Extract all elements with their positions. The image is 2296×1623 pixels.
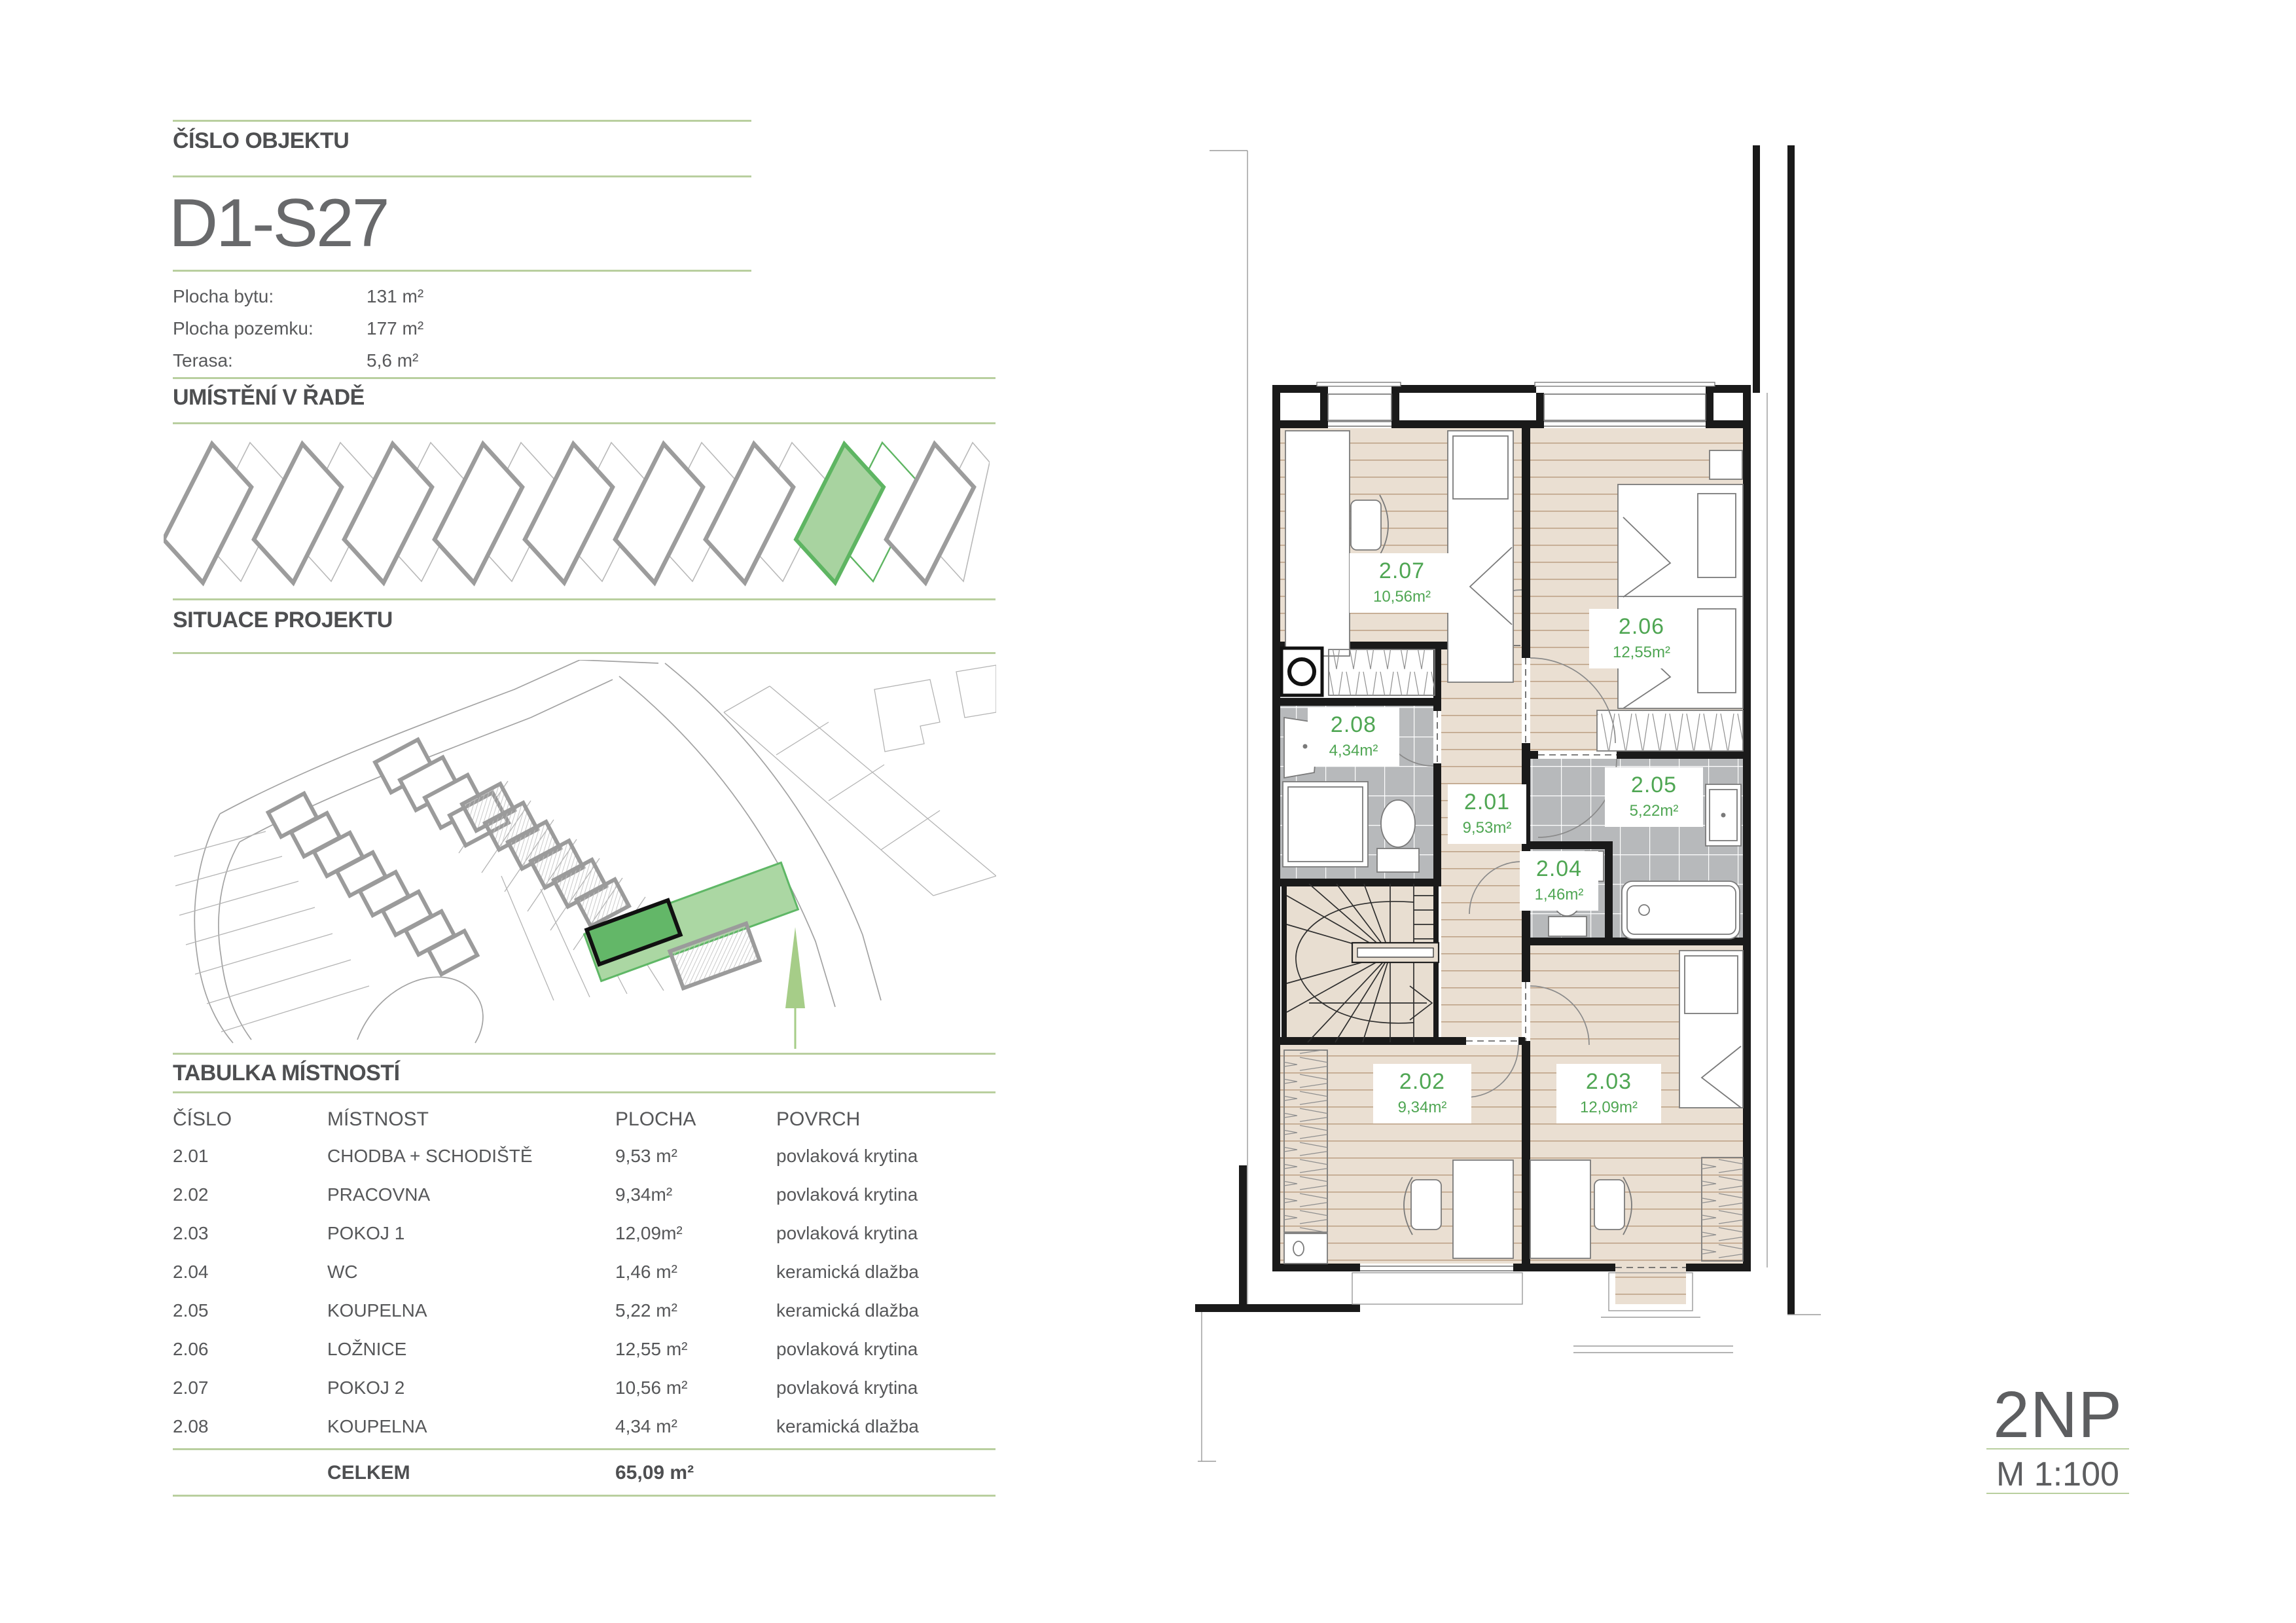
table-row: 2.06LOŽNICE12,55 m²povlaková krytina — [173, 1330, 996, 1368]
bed-2-07 — [1448, 431, 1513, 682]
room-name: POKOJ 2 — [327, 1377, 615, 1398]
room-label-2-06: 2.0612,55m² — [1589, 609, 1694, 668]
divider — [173, 1053, 996, 1055]
bathtub-2-05 — [1622, 881, 1740, 939]
wardrobe-2-06 — [1597, 710, 1743, 751]
sink-2-05 — [1706, 784, 1741, 846]
room-label-2-03: 2.0312,09m² — [1556, 1064, 1661, 1123]
room-table-total: CELKEM 65,09 m² — [173, 1452, 996, 1494]
detail-value: 5,6 m² — [367, 350, 418, 371]
table-row: 2.01CHODBA + SCHODIŠTĚ9,53 m²povlaková k… — [173, 1137, 996, 1175]
room-number: 2.05 — [173, 1300, 327, 1321]
room-name: LOŽNICE — [327, 1339, 615, 1360]
row-position-diagram — [164, 437, 990, 589]
room-table: ČÍSLO MÍSTNOST PLOCHA POVRCH 2.01CHODBA … — [173, 1103, 996, 1446]
bed-2-03 — [1679, 951, 1743, 1108]
detail-row: Plocha pozemku:177 m² — [173, 312, 751, 344]
room-label-2-02: 2.029,34m² — [1373, 1064, 1471, 1123]
room-name: PRACOVNA — [327, 1184, 615, 1205]
room-surface: povlaková krytina — [776, 1184, 996, 1205]
radiator-2-03 — [1702, 1158, 1743, 1261]
room-name: CHODBA + SCHODIŠTĚ — [327, 1146, 615, 1167]
site-house-row-middle — [462, 784, 629, 926]
nightstand — [1710, 450, 1742, 479]
shower-2-08 — [1283, 782, 1368, 867]
divider — [173, 652, 996, 654]
desk-2-03 — [1530, 1160, 1590, 1258]
divider — [1986, 1448, 2129, 1450]
room-name: KOUPELNA — [327, 1416, 615, 1437]
window-2-02 — [1352, 1266, 1522, 1304]
total-area: 65,09 m² — [615, 1462, 776, 1484]
room-surface: keramická dlažba — [776, 1416, 996, 1437]
room-name: KOUPELNA — [327, 1300, 615, 1321]
room-area: 10,56 m² — [615, 1377, 776, 1398]
room-area: 4,34 m² — [615, 1416, 776, 1437]
wardrobe-hall — [1329, 649, 1435, 695]
total-label: CELKEM — [327, 1462, 615, 1484]
detail-value: 131 m² — [367, 286, 423, 307]
room-name: POKOJ 1 — [327, 1223, 615, 1244]
col-area: PLOCHA — [615, 1108, 776, 1131]
north-arrow-icon — [785, 927, 805, 1049]
divider — [173, 120, 751, 122]
room-label-2-07: 2.0710,56m² — [1350, 553, 1454, 613]
col-surface: POVRCH — [776, 1108, 996, 1131]
row-position-heading: UMÍSTĚNÍ V ŘADĚ — [173, 385, 365, 410]
detail-row: Plocha bytu:131 m² — [173, 280, 751, 312]
room-surface: povlaková krytina — [776, 1223, 996, 1244]
detail-label: Plocha bytu: — [173, 286, 367, 307]
detail-value: 177 m² — [367, 318, 423, 339]
table-row: 2.03POKOJ 112,09m²povlaková krytina — [173, 1214, 996, 1252]
divider — [173, 422, 996, 424]
room-number: 2.01 — [173, 1146, 327, 1167]
room-number: 2.06 — [173, 1339, 327, 1360]
table-row: 2.05KOUPELNA5,22 m²keramická dlažba — [173, 1291, 996, 1330]
chair-2-07 — [1351, 500, 1381, 550]
scale-label: M 1:100 — [1986, 1455, 2129, 1494]
site-plan-heading: SITUACE PROJEKTU — [173, 608, 393, 633]
room-number: 2.07 — [173, 1377, 327, 1398]
room-area: 1,46 m² — [615, 1262, 776, 1283]
site-parcels — [174, 686, 996, 1032]
room-area: 9,53 m² — [615, 1146, 776, 1167]
room-area: 9,34m² — [615, 1184, 776, 1205]
room-number: 2.02 — [173, 1184, 327, 1205]
site-plan — [161, 660, 996, 1049]
site-existing-buildings — [874, 665, 996, 752]
room-area: 12,55 m² — [615, 1339, 776, 1360]
house-unit-row — [164, 443, 990, 583]
room-label-2-01: 2.019,53m² — [1448, 784, 1526, 844]
table-row: 2.02PRACOVNA9,34m²povlaková krytina — [173, 1175, 996, 1214]
room-number: 2.04 — [173, 1262, 327, 1283]
floor-label: 2NP — [1986, 1377, 2129, 1453]
chair-2-03 — [1594, 1180, 1624, 1230]
table-row: 2.04WC1,46 m²keramická dlažba — [173, 1252, 996, 1291]
detail-row: Terasa:5,6 m² — [173, 344, 751, 376]
window-2-07 — [1317, 382, 1401, 426]
detail-label: Plocha pozemku: — [173, 318, 367, 339]
room-surface: povlaková krytina — [776, 1377, 996, 1398]
room-label-2-08: 2.084,34m² — [1308, 707, 1399, 767]
room-surface: povlaková krytina — [776, 1339, 996, 1360]
divider — [173, 1091, 996, 1093]
divider — [1986, 1493, 2129, 1494]
toilet-2-08 — [1377, 800, 1419, 872]
divider — [173, 175, 751, 177]
col-name: MÍSTNOST — [327, 1108, 615, 1131]
room-label-2-04: 2.041,46m² — [1520, 851, 1598, 911]
room-table-header: ČÍSLO MÍSTNOST PLOCHA POVRCH — [173, 1103, 996, 1137]
room-area: 5,22 m² — [615, 1300, 776, 1321]
room-table-heading: TABULKA MÍSTNOSTÍ — [173, 1061, 400, 1086]
chair-2-02 — [1411, 1180, 1441, 1230]
object-id: D1-S27 — [169, 185, 388, 263]
object-details: Plocha bytu:131 m² Plocha pozemku:177 m²… — [173, 280, 751, 376]
washing-machine-icon — [1282, 648, 1322, 695]
room-number: 2.08 — [173, 1416, 327, 1437]
room-surface: keramická dlažba — [776, 1300, 996, 1321]
object-number-heading: ČÍSLO OBJEKTU — [173, 128, 349, 154]
divider — [173, 1495, 996, 1497]
col-number: ČÍSLO — [173, 1108, 327, 1131]
wardrobe-2-02 — [1284, 1050, 1327, 1264]
room-area: 12,09m² — [615, 1223, 776, 1244]
room-number: 2.03 — [173, 1223, 327, 1244]
detail-label: Terasa: — [173, 350, 367, 371]
room-surface: povlaková krytina — [776, 1146, 996, 1167]
floor-plan-sheet: { "header": { "section_label": "ČÍSLO OB… — [0, 0, 2296, 1623]
divider — [173, 270, 751, 272]
desk-2-02 — [1453, 1160, 1513, 1258]
divider — [173, 1448, 996, 1450]
divider — [173, 598, 996, 600]
window-2-06 — [1535, 382, 1715, 426]
table-row: 2.07POKOJ 210,56 m²povlaková krytina — [173, 1368, 996, 1407]
double-bed-2-06 — [1618, 484, 1743, 708]
desk-2-07 — [1285, 431, 1350, 656]
room-name: WC — [327, 1262, 615, 1283]
divider — [173, 377, 996, 379]
room-label-2-05: 2.055,22m² — [1605, 767, 1703, 827]
room-surface: keramická dlažba — [776, 1262, 996, 1283]
table-row: 2.08KOUPELNA4,34 m²keramická dlažba — [173, 1407, 996, 1446]
